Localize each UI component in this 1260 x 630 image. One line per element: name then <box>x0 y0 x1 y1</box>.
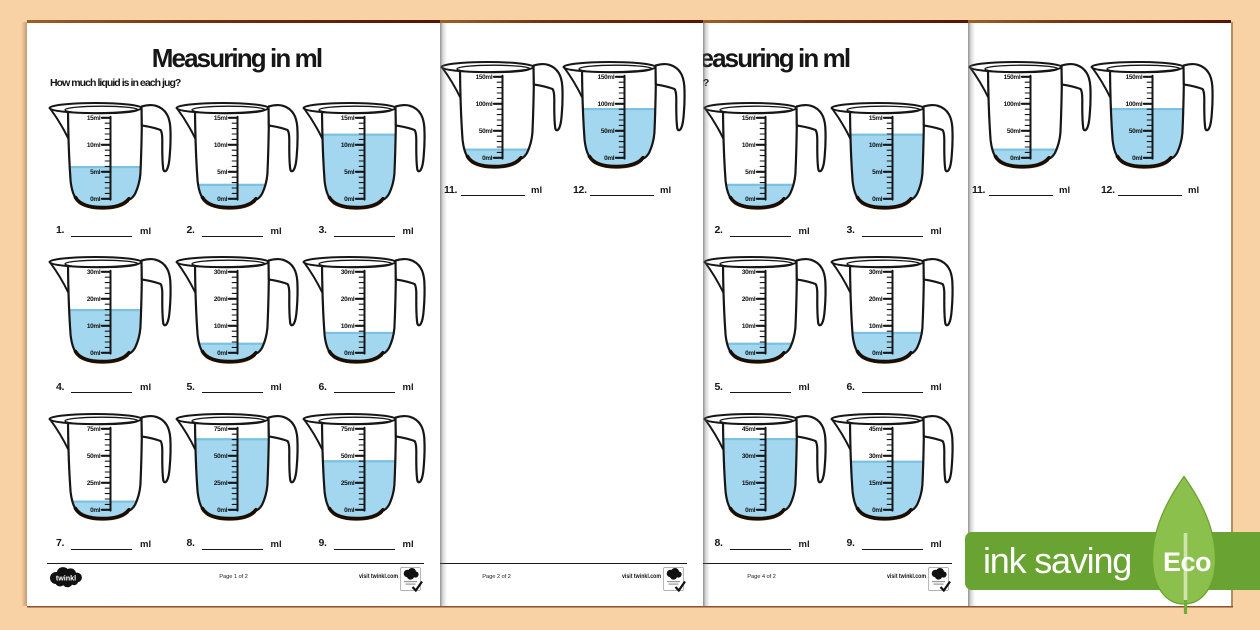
svg-text:visit twinkl.com: visit twinkl.com <box>622 573 661 580</box>
svg-text:visit twinkl.com: visit twinkl.com <box>887 573 926 580</box>
svg-text:visit twinkl.com: visit twinkl.com <box>359 573 398 580</box>
